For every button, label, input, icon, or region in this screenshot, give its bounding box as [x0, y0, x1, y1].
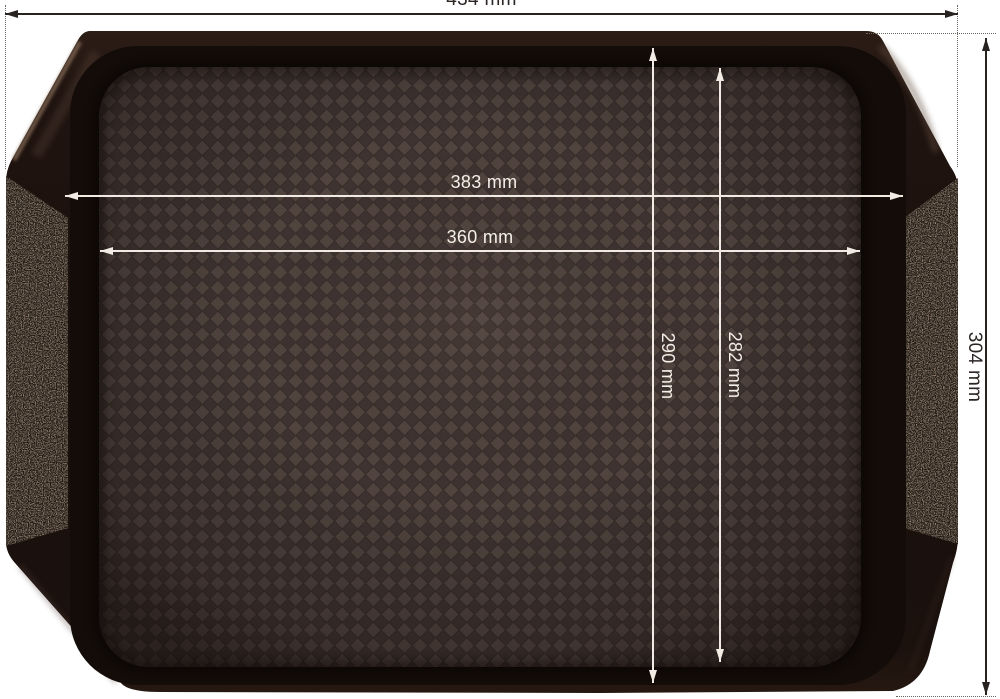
- dimension-label: 383 mm: [451, 172, 518, 193]
- extension-line-bottom-right: [896, 696, 996, 697]
- dimension-line: [985, 38, 987, 695]
- dimension-label: 434 mm: [446, 0, 516, 11]
- arrow-up-icon: [649, 48, 657, 61]
- extension-line-right: [957, 5, 958, 167]
- arrow-left-icon: [5, 10, 18, 18]
- arrow-down-icon: [649, 670, 657, 683]
- dimension-label: 290 mm: [657, 332, 678, 399]
- arrow-right-icon: [847, 247, 860, 255]
- arrow-left-icon: [65, 192, 78, 200]
- arrow-right-icon: [945, 10, 958, 18]
- dimension-line: [719, 68, 721, 662]
- product-dimension-image: 434 mm 304 mm 383 mm 360 mm 290 mm 282 m…: [0, 0, 1000, 699]
- dimension-line: [5, 13, 958, 15]
- extension-line-left: [5, 5, 6, 169]
- floor-vignette: [99, 67, 861, 667]
- left-handle-texture: [0, 168, 76, 554]
- arrow-down-icon: [716, 649, 724, 662]
- dimension-line: [65, 195, 903, 197]
- dimension-line: [100, 250, 860, 252]
- arrow-up-icon: [716, 68, 724, 81]
- arrow-left-icon: [100, 247, 113, 255]
- right-handle-texture: [896, 170, 966, 552]
- tray-photo: [0, 0, 1000, 699]
- dimension-label: 304 mm: [963, 331, 985, 401]
- arrow-right-icon: [890, 192, 903, 200]
- dimension-line: [652, 48, 654, 683]
- arrow-down-icon: [982, 682, 990, 695]
- dimension-label: 360 mm: [447, 227, 514, 248]
- dimension-label: 282 mm: [724, 332, 745, 399]
- extension-line-top-right: [866, 33, 996, 34]
- arrow-up-icon: [982, 38, 990, 51]
